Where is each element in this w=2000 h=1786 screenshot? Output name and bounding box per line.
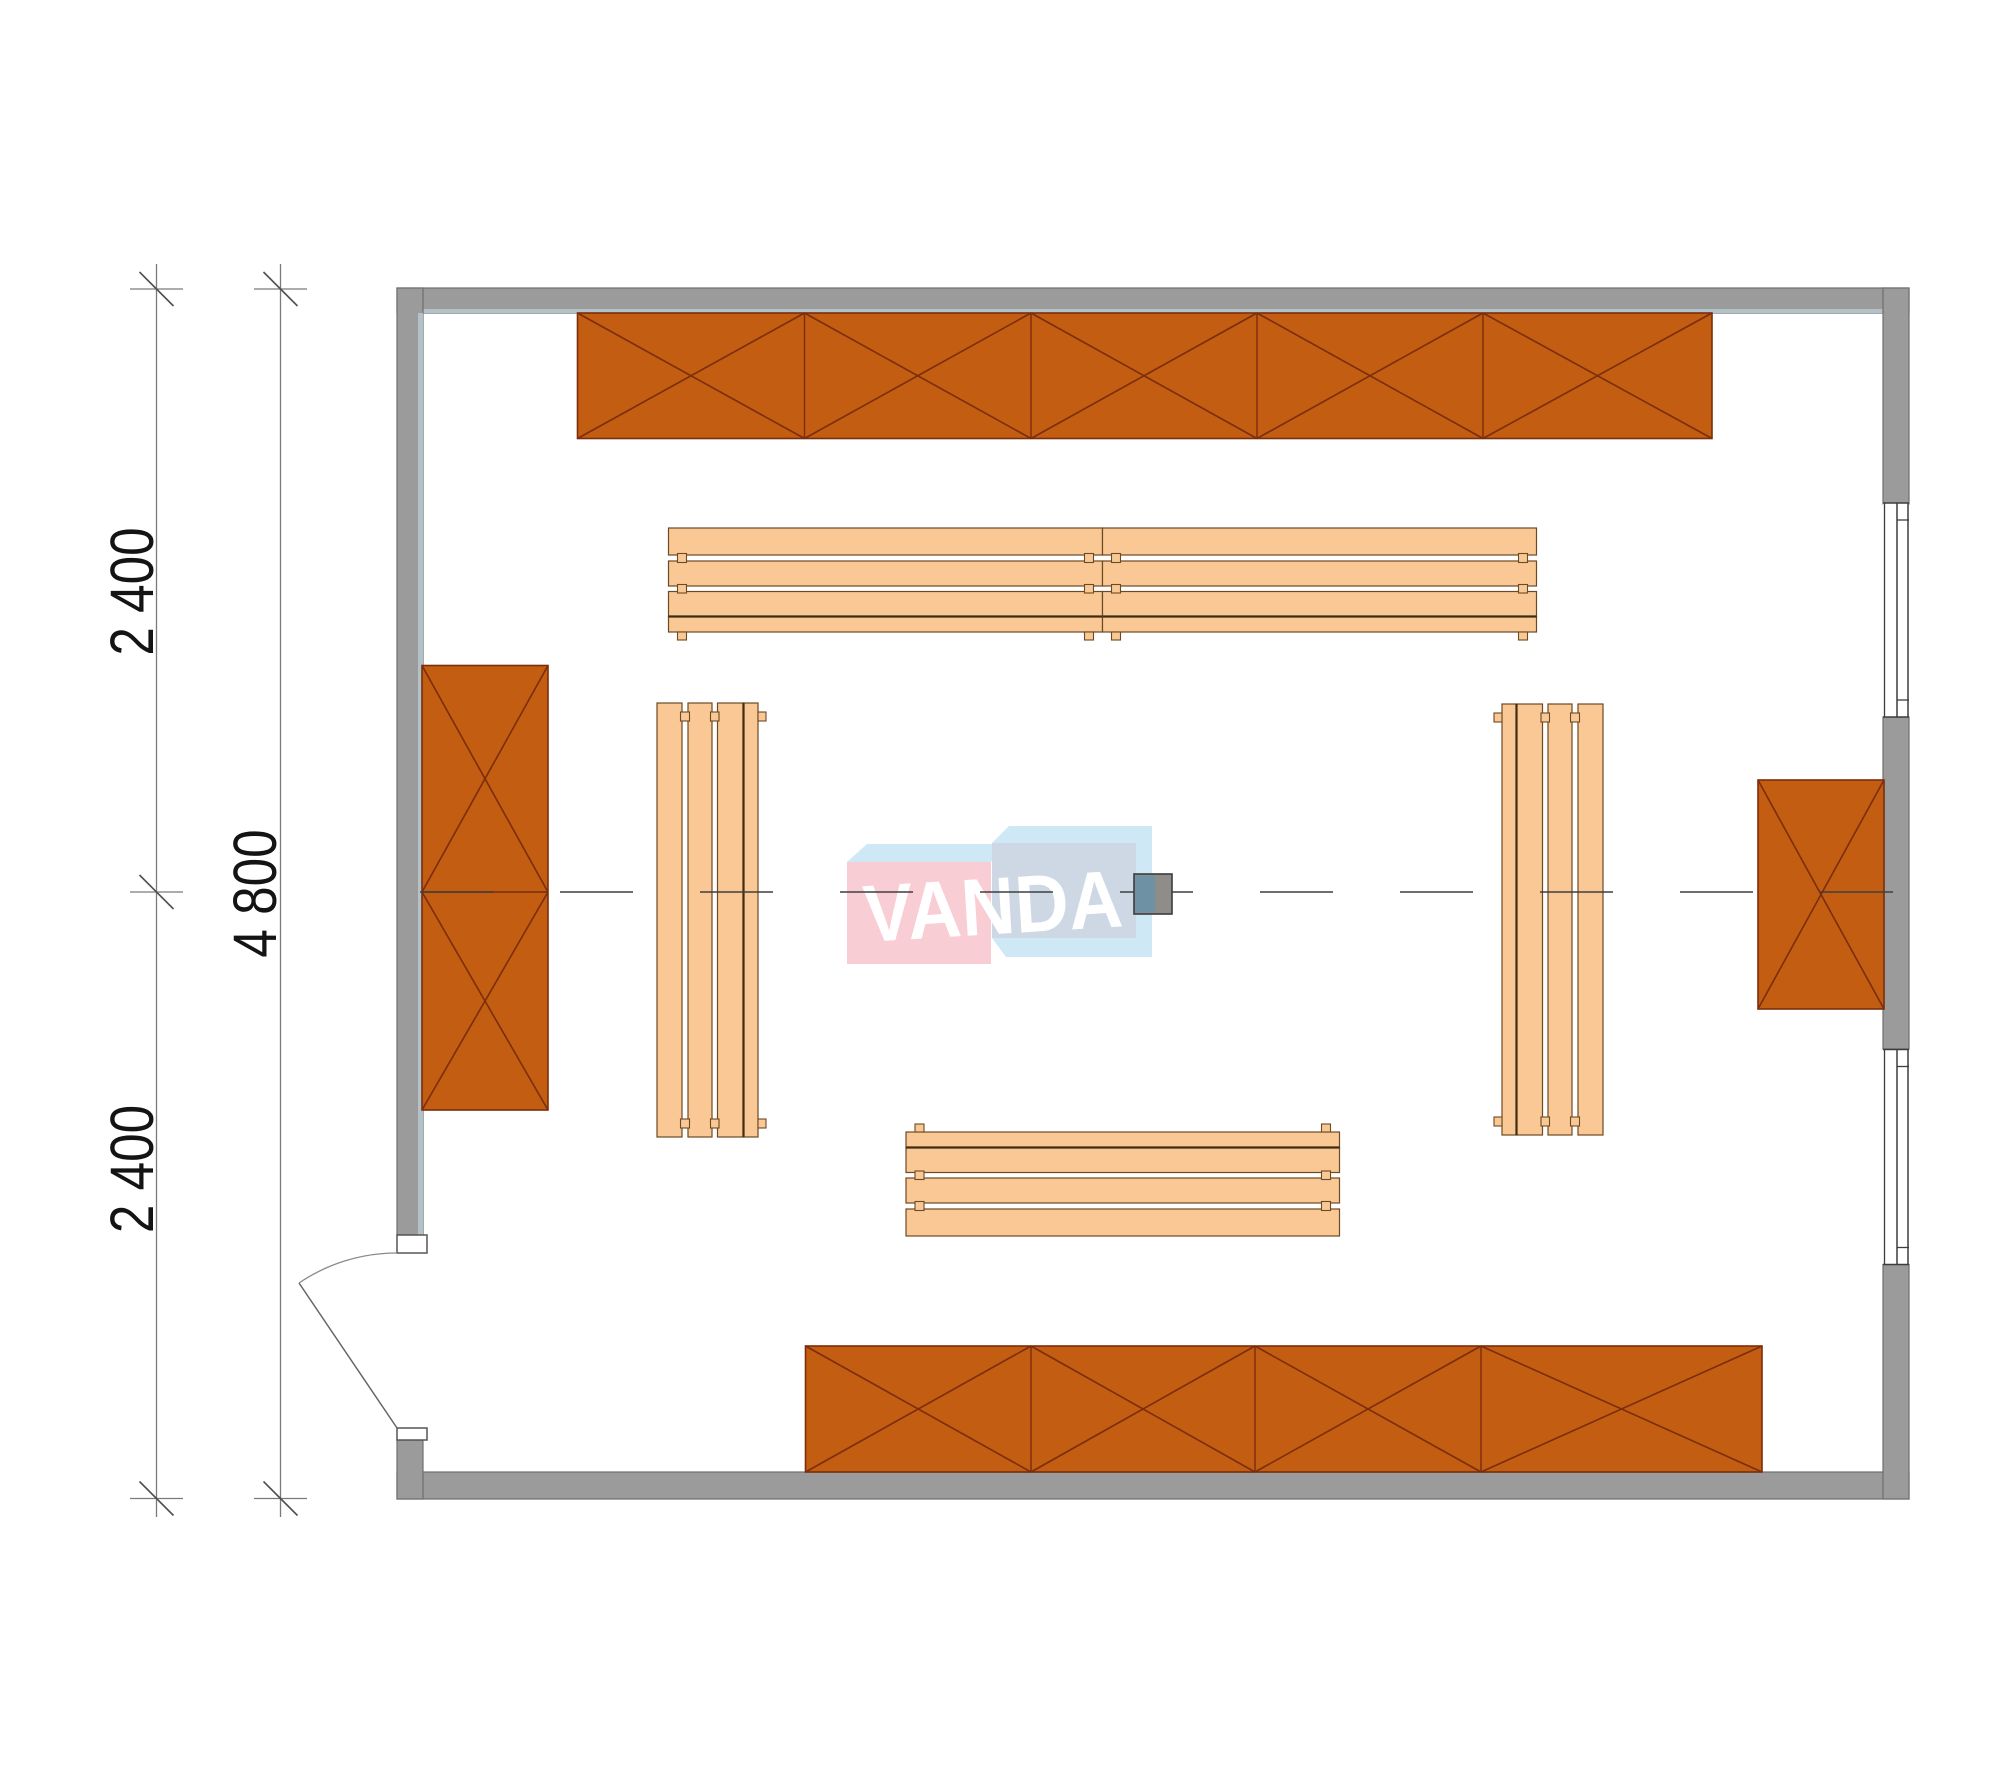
svg-text:VANDA: VANDA xyxy=(861,854,1125,959)
svg-text:2 400: 2 400 xyxy=(98,527,166,655)
svg-text:4 800: 4 800 xyxy=(221,829,289,957)
svg-text:2 400: 2 400 xyxy=(98,1105,166,1233)
